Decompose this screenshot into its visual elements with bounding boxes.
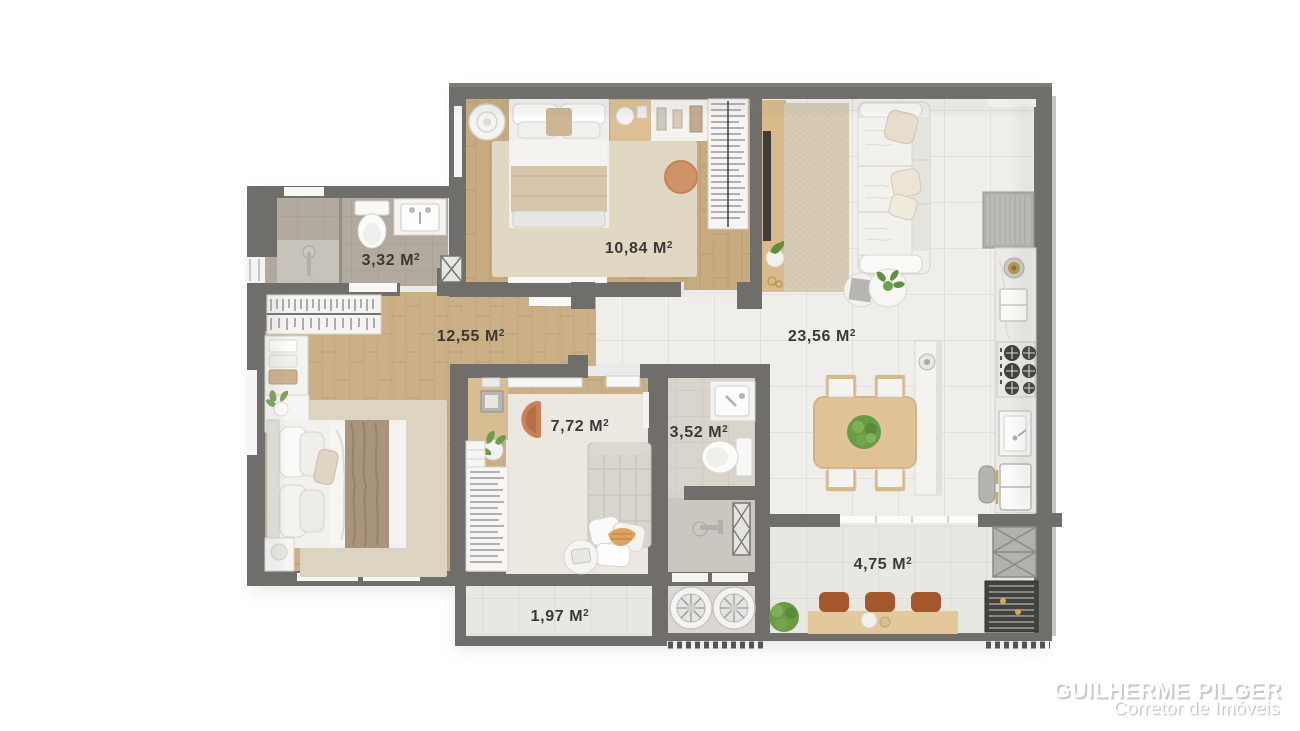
svg-text:23,56 M2: 23,56 M2 — [788, 328, 856, 345]
svg-text:1,97 M2: 1,97 M2 — [531, 608, 590, 625]
svg-text:Corretor de Imóveis: Corretor de Imóveis — [1113, 697, 1279, 718]
svg-text:10,84 M2: 10,84 M2 — [605, 240, 673, 257]
svg-text:7,72 M2: 7,72 M2 — [551, 418, 610, 435]
svg-text:12,55 M2: 12,55 M2 — [437, 328, 505, 345]
svg-text:4,75 M2: 4,75 M2 — [854, 556, 913, 573]
svg-text:3,32 M2: 3,32 M2 — [362, 252, 421, 269]
svg-text:3,52 M2: 3,52 M2 — [670, 424, 729, 441]
